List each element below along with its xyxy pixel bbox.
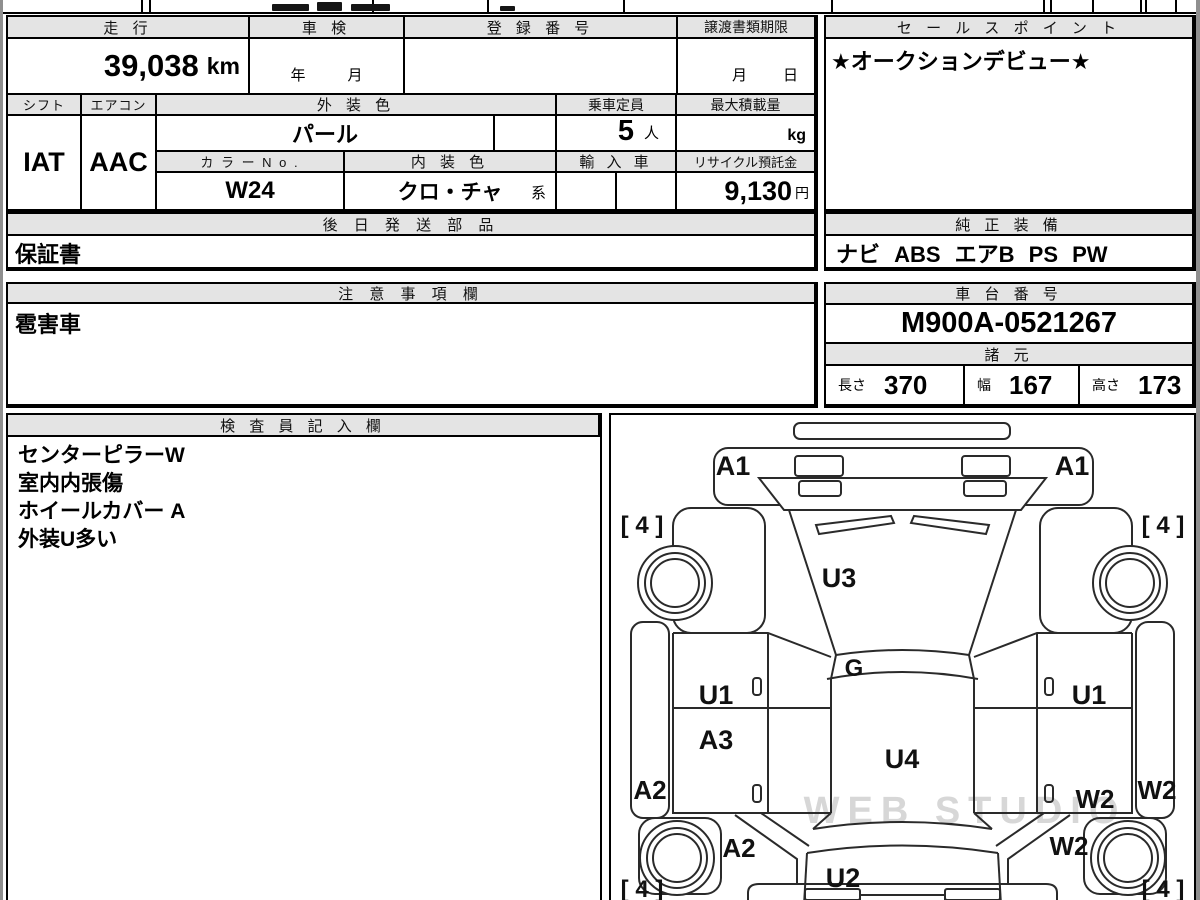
- shaken-cell: 年 月: [250, 39, 405, 95]
- cutoff-text-remnant: [317, 2, 342, 11]
- later-parts-header: 後 日 発 送 部 品: [8, 214, 816, 236]
- notes-value: 雹害車: [8, 304, 814, 342]
- transfer-deadline-header: 譲渡書類期限: [678, 17, 816, 39]
- height-cell: 高さ 173: [1080, 366, 1194, 406]
- recycle-fee-cell: 9,130 円: [677, 173, 816, 211]
- shaken-header: 車 検: [250, 17, 405, 39]
- transfer-deadline-cell: 月 日: [678, 39, 816, 95]
- recycle-header: リサイクル預託金: [677, 152, 816, 173]
- rear-plate-recess: [860, 895, 945, 900]
- cutoff-divider: [1145, 0, 1147, 12]
- length-label: 長さ: [838, 375, 866, 395]
- page-edge-left: [0, 0, 3, 900]
- chassis-number: M900A-0521267: [826, 305, 1194, 344]
- sales-point-value: ★オークションデビュー★: [826, 39, 1192, 81]
- damage-label-a1-left: A1: [716, 451, 751, 481]
- wiper-right: [911, 516, 989, 534]
- tire-label-front-right: [ 4 ]: [1142, 512, 1185, 539]
- cutoff-divider: [1050, 0, 1052, 12]
- max-load-cell: kg: [677, 116, 816, 152]
- sales-point-header: セ ー ル ス ポ イ ン ト: [826, 17, 1194, 39]
- mileage-header: 走 行: [8, 17, 250, 39]
- cutoff-divider: [141, 0, 143, 12]
- cutoff-divider: [487, 0, 489, 12]
- inspector-header: 検 査 員 記 入 欄: [8, 415, 600, 437]
- exterior-color-extra-cell: [495, 116, 557, 152]
- cutoff-divider: [1043, 0, 1045, 12]
- equipment-section: 純 正 装 備 ナビ ABS エアB PS PW: [826, 214, 1194, 269]
- inspector-section: 検 査 員 記 入 欄 センターピラーW 室内内張傷 ホイールカバー A 外装U…: [8, 415, 600, 900]
- interior-color-cell: クロ・チャ 系: [345, 173, 557, 211]
- tire-label-rear-left: [ 4 ]: [621, 876, 664, 900]
- cutoff-divider: [1175, 0, 1177, 12]
- inspector-notes: センターピラーW 室内内張傷 ホイールカバー A 外装U多い: [8, 437, 600, 559]
- mileage-cell: 39,038 km: [8, 39, 250, 95]
- sales-point-section: セ ー ル ス ポ イ ン ト ★オークションデビュー★: [826, 17, 1194, 211]
- interior-color-value: クロ・チャ: [345, 173, 555, 209]
- height-label: 高さ: [1092, 375, 1120, 395]
- capacity-cell: 5 人: [557, 116, 677, 152]
- height-value: 173: [1138, 370, 1181, 401]
- cutoff-divider: [623, 0, 625, 12]
- length-value: 370: [884, 370, 927, 401]
- sales-point-cell: ★オークションデビュー★: [826, 39, 1194, 211]
- damage-label-w2-sill: W2: [1138, 775, 1177, 805]
- max-load-header: 最大積載量: [677, 95, 816, 116]
- import-cell-1: [557, 173, 617, 211]
- cutoff-text-remnant: [351, 4, 390, 11]
- notes-section: 注 意 事 項 欄 雹害車: [8, 284, 816, 406]
- notes-header: 注 意 事 項 欄: [8, 284, 816, 304]
- cutoff-divider: [831, 0, 833, 12]
- car-top-view-svg: WEB STUDIO: [611, 415, 1194, 900]
- inspector-line: 室内内張傷: [18, 470, 590, 498]
- door-handle-rear-left: [753, 785, 761, 802]
- vehicle-info-table: 走 行 車 検 登 録 番 号 譲渡書類期限 39,038 km 年 月 月 日…: [8, 17, 816, 211]
- cutoff-text-remnant: [272, 4, 309, 11]
- equipment-value: ナビ ABS エアB PS PW: [826, 236, 1192, 269]
- capacity-value: 5: [618, 117, 634, 146]
- shift-value: IAT: [8, 116, 82, 211]
- equipment-cell: ナビ ABS エアB PS PW: [826, 236, 1194, 269]
- shaken-month-label: 月: [348, 64, 363, 85]
- chassis-specs-section: 車 台 番 号 M900A-0521267 諸 元 長さ 370 幅 167 高…: [826, 284, 1194, 406]
- interior-color-header: 内 装 色: [345, 152, 557, 173]
- width-cell: 幅 167: [965, 366, 1080, 406]
- length-cell: 長さ 370: [826, 366, 965, 406]
- cutoff-divider: [1092, 0, 1094, 12]
- damage-label-a3: A3: [699, 725, 734, 755]
- tire-label-rear-right: [ 4 ]: [1142, 876, 1185, 900]
- registration-header: 登 録 番 号: [405, 17, 678, 39]
- color-no-header: カ ラ ー N o .: [157, 152, 345, 173]
- door-top-left: [673, 633, 831, 657]
- inspector-line: ホイールカバー A: [18, 498, 590, 526]
- door-top-right: [974, 633, 1132, 657]
- door-outline-left: [673, 633, 831, 813]
- shift-header: シフト: [8, 95, 82, 116]
- import-header: 輸 入 車: [557, 152, 677, 173]
- damage-label-a2-sill: A2: [633, 775, 666, 805]
- damage-label-g: G: [845, 655, 864, 682]
- quarter-line-left-1: [761, 813, 809, 846]
- later-parts-cell: 保証書: [8, 236, 816, 269]
- inspector-line: 外装U多い: [18, 526, 590, 554]
- interior-color-suffix: 系: [531, 182, 546, 203]
- registration-cell: [405, 39, 678, 95]
- recycle-fee-unit: 円: [795, 183, 809, 205]
- chassis-header: 車 台 番 号: [826, 284, 1194, 305]
- damage-diagram: WEB STUDIO: [611, 415, 1194, 900]
- mileage-value: 39,038: [104, 48, 199, 84]
- headlight-right: [962, 456, 1010, 476]
- later-parts-section: 後 日 発 送 部 品 保証書: [8, 214, 816, 269]
- damage-label-u4: U4: [885, 744, 920, 774]
- auction-sheet: 走 行 車 検 登 録 番 号 譲渡書類期限 39,038 km 年 月 月 日…: [0, 0, 1200, 900]
- cutoff-divider: [149, 0, 151, 12]
- import-cell-2: [617, 173, 677, 211]
- damage-label-u3: U3: [822, 563, 857, 593]
- door-handle-front-right: [1045, 678, 1053, 695]
- headlight-left: [795, 456, 843, 476]
- recycle-fee-value: 9,130: [724, 178, 792, 205]
- specs-header: 諸 元: [826, 344, 1194, 366]
- damage-label-w2-door: W2: [1076, 784, 1115, 814]
- damage-label-a2-quarter: A2: [722, 833, 755, 863]
- width-label: 幅: [977, 375, 991, 395]
- exterior-color-header: 外 装 色: [157, 95, 557, 116]
- cutoff-row: [3, 0, 1196, 14]
- notes-cell: 雹害車: [8, 304, 816, 406]
- width-value: 167: [1009, 370, 1052, 401]
- page-edge-right: [1196, 0, 1200, 900]
- hood: [759, 478, 1046, 510]
- exterior-color-value: パール: [157, 116, 495, 152]
- inspector-line: センターピラーW: [18, 442, 590, 470]
- damage-label-u2: U2: [826, 863, 861, 893]
- equipment-header: 純 正 装 備: [826, 214, 1194, 236]
- damage-label-w2-quarter: W2: [1050, 831, 1089, 861]
- color-no-value: W24: [157, 173, 345, 211]
- later-parts-value: 保証書: [8, 236, 814, 269]
- transfer-month-label: 月: [732, 64, 747, 85]
- damage-label-a1-right: A1: [1055, 451, 1090, 481]
- front-plate-strip: [794, 423, 1010, 439]
- mileage-unit: km: [207, 53, 240, 80]
- tire-label-front-left: [ 4 ]: [621, 512, 664, 539]
- transfer-day-label: 日: [783, 64, 798, 85]
- rear-window-bottom: [807, 846, 998, 854]
- aircon-value: AAC: [82, 116, 157, 211]
- damage-label-u1-left: U1: [699, 680, 734, 710]
- capacity-unit: 人: [644, 122, 659, 146]
- wheel-front-right: [1093, 546, 1167, 620]
- capacity-header: 乗車定員: [557, 95, 677, 116]
- wheel-front-left: [638, 546, 712, 620]
- aircon-header: エアコン: [82, 95, 157, 116]
- rear-bumper: [748, 884, 1057, 900]
- door-handle-front-left: [753, 678, 761, 695]
- shaken-year-label: 年: [290, 64, 305, 85]
- cutoff-divider: [1140, 0, 1142, 12]
- taillight-right: [945, 889, 1000, 900]
- cutoff-text-remnant: [500, 6, 515, 11]
- wiper-left: [816, 516, 894, 534]
- damage-label-u1-right: U1: [1072, 680, 1107, 710]
